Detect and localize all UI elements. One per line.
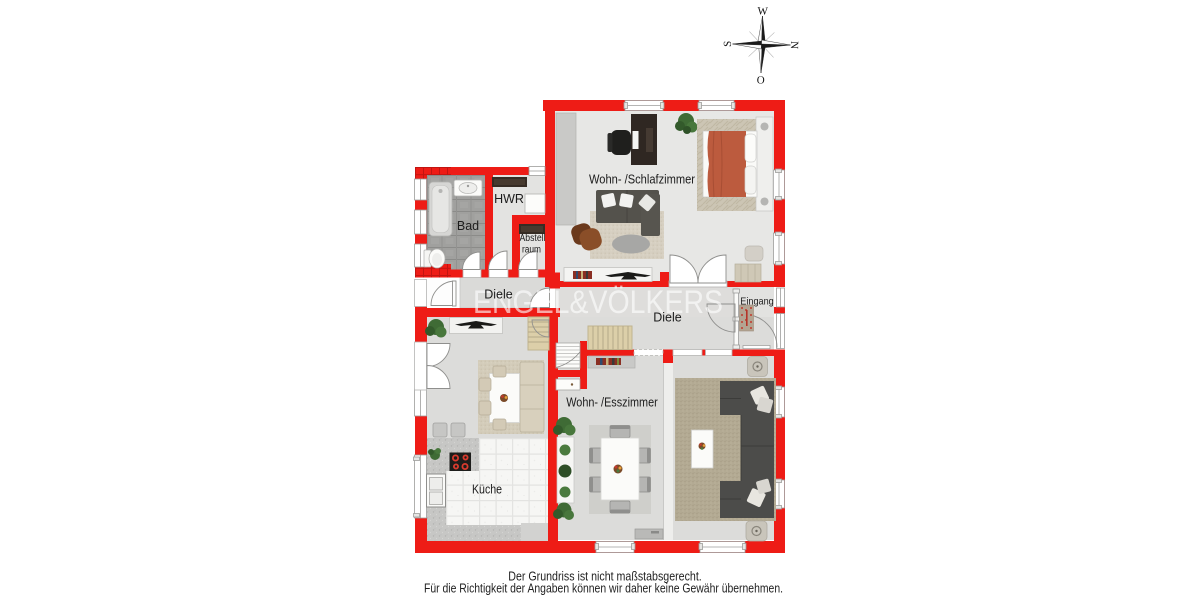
svg-text:S: S bbox=[722, 41, 734, 48]
svg-text:O: O bbox=[757, 74, 765, 86]
svg-text:N: N bbox=[788, 41, 800, 49]
svg-text:Küche: Küche bbox=[472, 483, 502, 497]
svg-text:Diele: Diele bbox=[484, 288, 513, 302]
svg-text:Diele: Diele bbox=[653, 311, 682, 325]
svg-text:Abstell: Abstell bbox=[520, 233, 546, 244]
svg-text:raum: raum bbox=[522, 245, 541, 256]
svg-text:HWR: HWR bbox=[494, 192, 524, 206]
svg-text:Wohn- /Schlafzimmer: Wohn- /Schlafzimmer bbox=[589, 173, 695, 187]
svg-text:Wohn- /Esszimmer: Wohn- /Esszimmer bbox=[566, 396, 658, 410]
svg-text:W: W bbox=[757, 5, 768, 17]
svg-text:Eingang: Eingang bbox=[740, 296, 774, 308]
svg-text:Bad: Bad bbox=[457, 219, 479, 233]
svg-text:Für die Richtigkeit der Angabe: Für die Richtigkeit der Angaben können w… bbox=[424, 582, 783, 596]
